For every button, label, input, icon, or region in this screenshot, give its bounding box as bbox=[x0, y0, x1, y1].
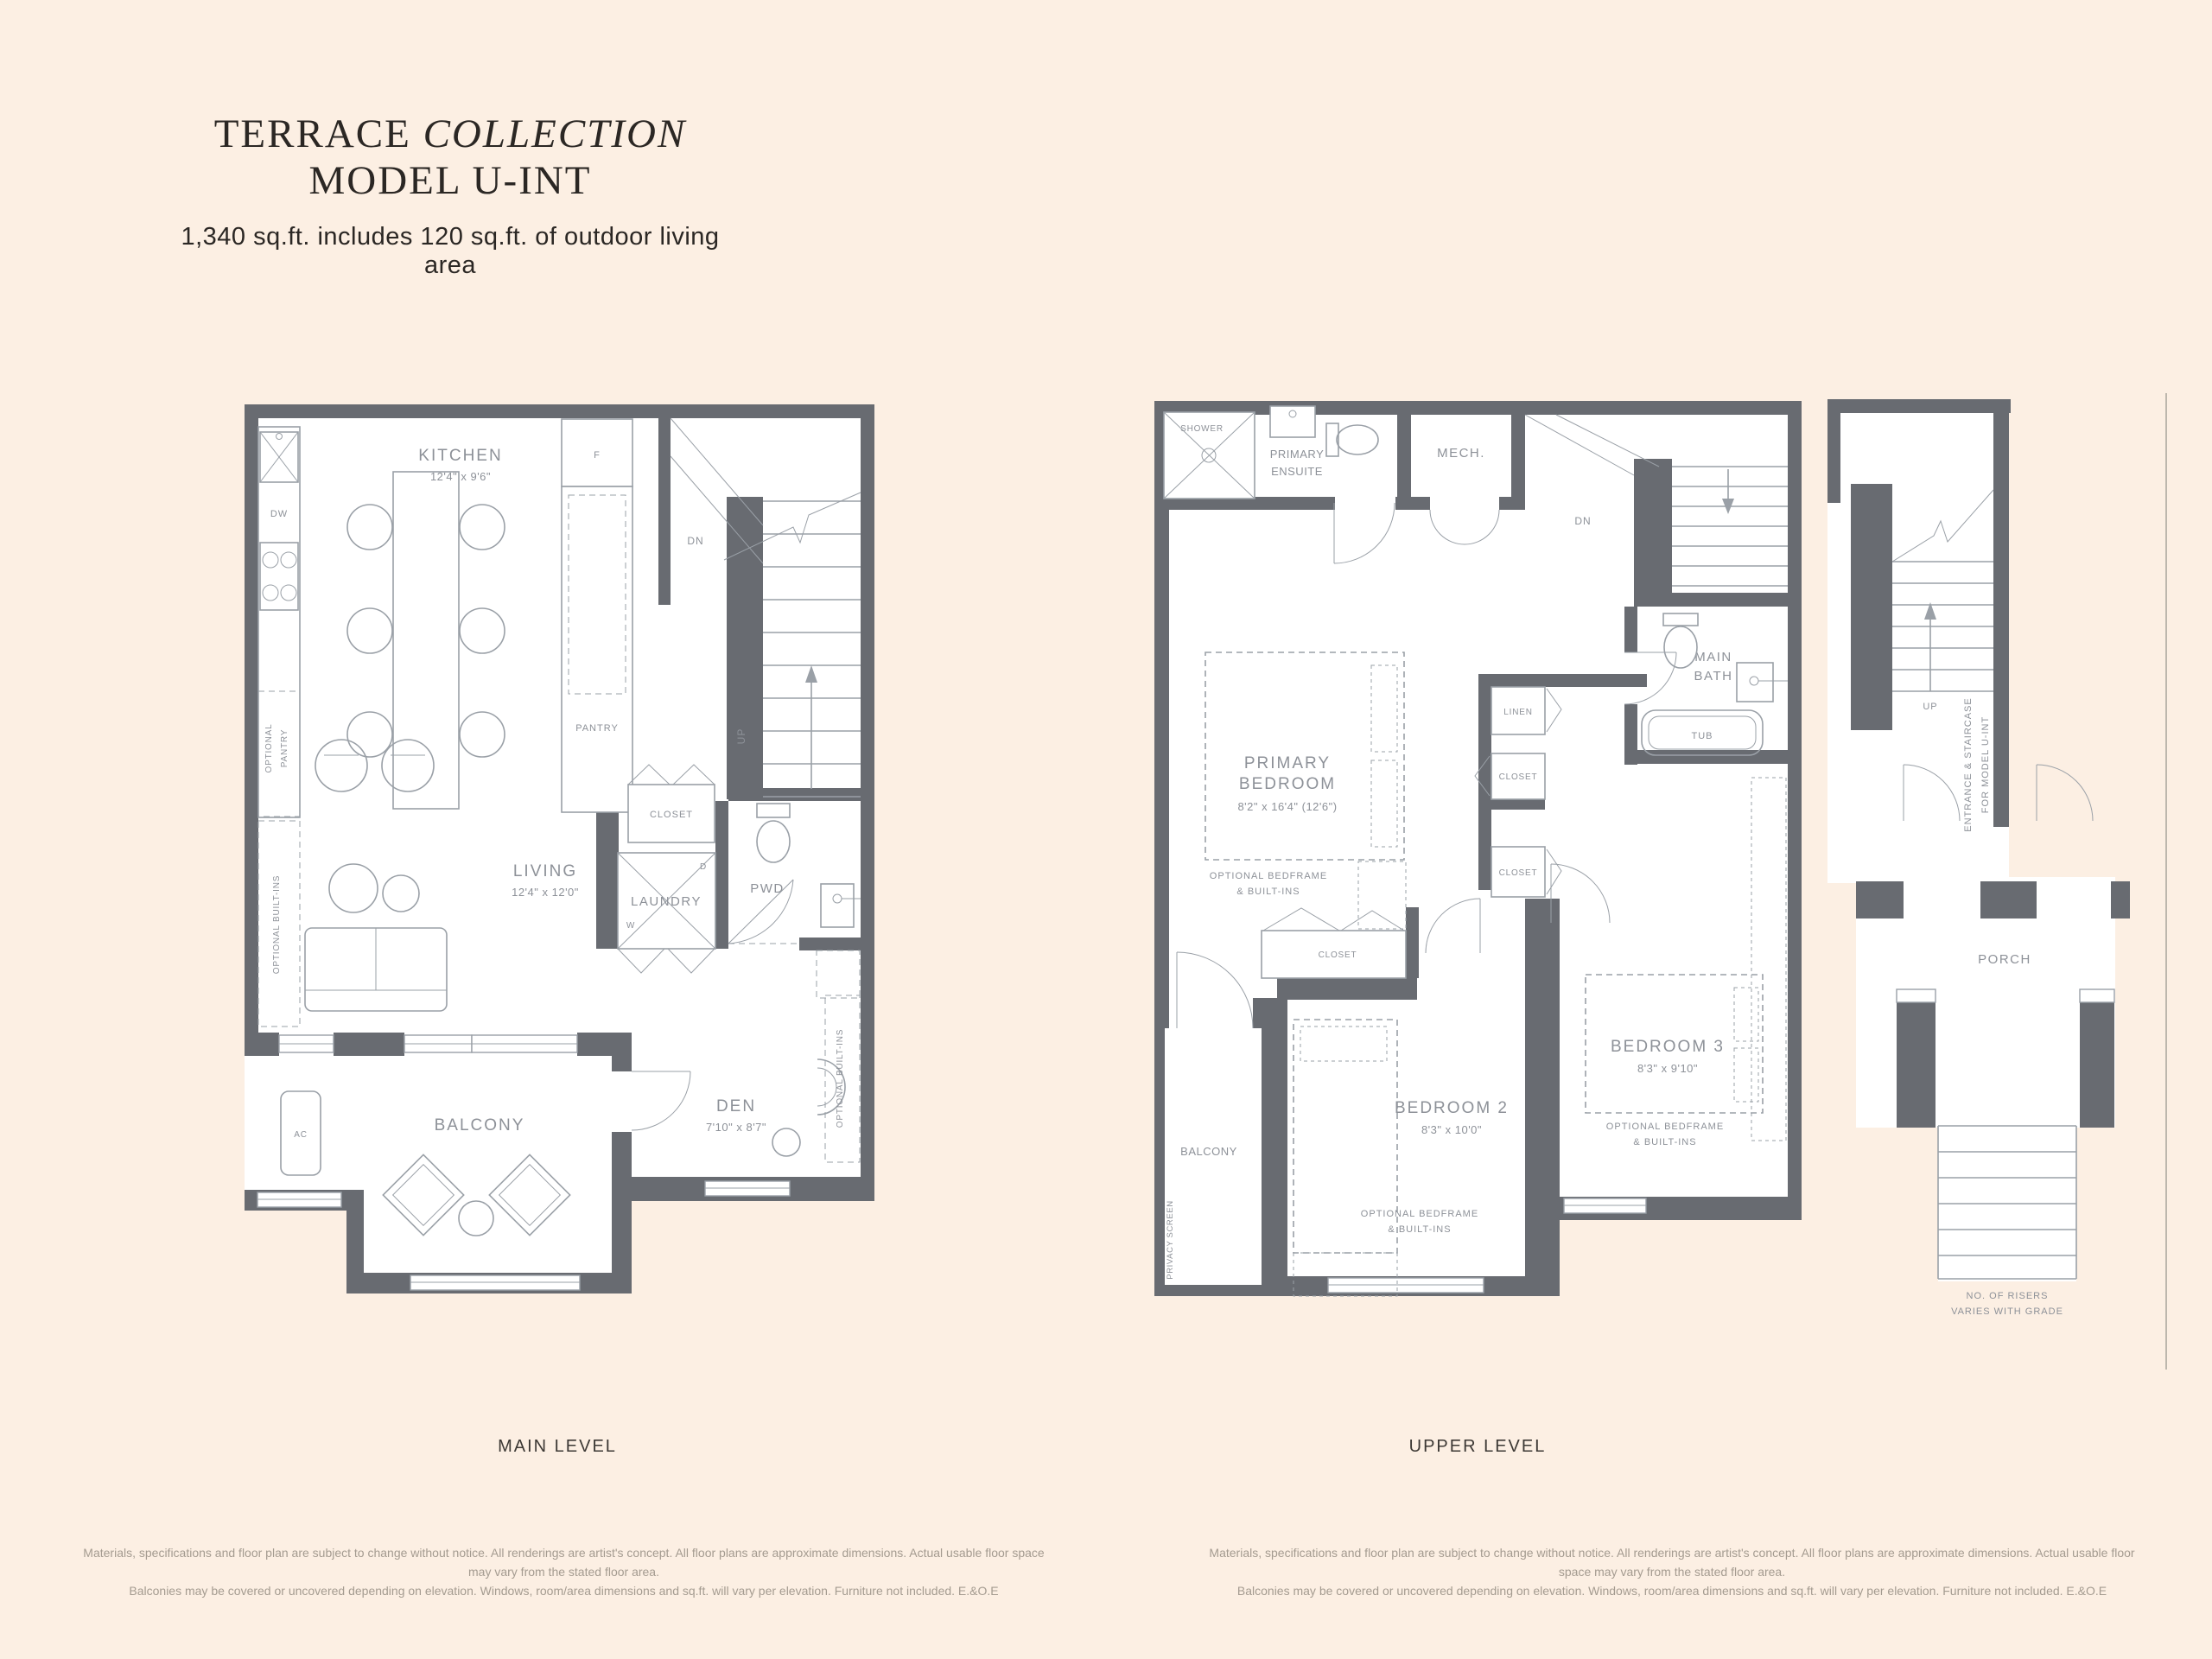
main-bath-label-2: BATH bbox=[1694, 669, 1733, 683]
main-bath-label-1: MAIN bbox=[1694, 650, 1732, 664]
fridge-label: F bbox=[594, 450, 601, 461]
pwd-toilet bbox=[757, 804, 790, 817]
optional-builtins-left-label: OPTIONAL BUILT-INS bbox=[272, 875, 282, 974]
risers-note-2: VARIES WITH GRADE bbox=[1951, 1306, 2063, 1317]
ensuite-label-1: PRIMARY bbox=[1270, 448, 1325, 461]
main-balcony-label: BALCONY bbox=[435, 1116, 525, 1135]
bedroom3-optional-bedframe-1: OPTIONAL BEDFRAME bbox=[1606, 1122, 1724, 1132]
page-title-line1: TERRACE COLLECTION bbox=[169, 111, 731, 157]
primary-closet-label: CLOSET bbox=[1319, 950, 1357, 960]
bedroom2-optional-bedframe-2: & BUILT-INS bbox=[1388, 1224, 1451, 1235]
kitchen-label: KITCHEN bbox=[418, 447, 502, 465]
privacy-screen-label: PRIVACY SCREEN bbox=[1166, 1200, 1175, 1279]
bedroom2-label: BEDROOM 2 bbox=[1395, 1099, 1509, 1117]
pantry-cabinet bbox=[562, 486, 632, 812]
page-subtitle: 1,340 sq.ft. includes 120 sq.ft. of outd… bbox=[169, 223, 731, 280]
entrance-up-label: UP bbox=[1923, 702, 1937, 712]
page-title-line2: MODEL U-INT bbox=[169, 157, 731, 204]
closet-1-label: CLOSET bbox=[1499, 772, 1538, 782]
upper-floor bbox=[1154, 401, 1802, 1296]
tub-label: TUB bbox=[1692, 731, 1713, 741]
bath-toilet bbox=[1663, 613, 1698, 626]
upper-level-caption: UPPER LEVEL bbox=[1365, 1437, 1590, 1457]
bedroom3-optional-bedframe-2: & BUILT-INS bbox=[1633, 1137, 1696, 1147]
upper-balcony-label: BALCONY bbox=[1180, 1145, 1237, 1158]
washer-label: W bbox=[626, 921, 635, 931]
disclaimer-right: Materials, specifications and floor plan… bbox=[1192, 1543, 2152, 1600]
closet-2-label: CLOSET bbox=[1499, 868, 1538, 878]
upper-dn-label: DN bbox=[1574, 515, 1591, 527]
main-closet-label: CLOSET bbox=[650, 810, 693, 820]
main-level-caption: MAIN LEVEL bbox=[445, 1437, 670, 1457]
laundry-label: LAUNDRY bbox=[631, 894, 702, 909]
linen-label: LINEN bbox=[1503, 708, 1532, 717]
living-label: LIVING bbox=[513, 862, 577, 880]
header: TERRACE COLLECTION MODEL U-INT 1,340 sq.… bbox=[169, 111, 731, 280]
pantry-label: PANTRY bbox=[575, 723, 619, 734]
bath-sink bbox=[1737, 663, 1773, 702]
dishwasher-label: DW bbox=[270, 509, 288, 519]
main-dn-label: DN bbox=[687, 535, 703, 547]
disclaimer-left: Materials, specifications and floor plan… bbox=[82, 1543, 1046, 1600]
disclaimer-left-line1: Materials, specifications and floor plan… bbox=[82, 1543, 1046, 1581]
dining-table bbox=[393, 472, 459, 809]
disclaimer-right-line1: Materials, specifications and floor plan… bbox=[1192, 1543, 2152, 1581]
primary-optional-bedframe-2: & BUILT-INS bbox=[1236, 887, 1300, 897]
pwd-sink bbox=[821, 884, 854, 927]
primary-bedroom-label-1: PRIMARY bbox=[1244, 754, 1331, 772]
den-label: DEN bbox=[716, 1097, 756, 1116]
optional-builtins-den-label: OPTIONAL BUILT-INS bbox=[836, 1029, 845, 1128]
floorplan-sheet: { "colors": { "background": "#fcefe3", "… bbox=[0, 0, 2212, 1659]
title-italic: COLLECTION bbox=[423, 111, 687, 156]
optional-pantry-label-1: OPTIONAL bbox=[264, 724, 274, 773]
mech-label: MECH. bbox=[1437, 446, 1485, 461]
disclaimer-left-line2: Balconies may be covered or uncovered de… bbox=[82, 1581, 1046, 1600]
disclaimer-right-line2: Balconies may be covered or uncovered de… bbox=[1192, 1581, 2152, 1600]
primary-bedroom-label-2: BEDROOM bbox=[1239, 775, 1336, 793]
bedroom3-dim: 8'3" x 9'10" bbox=[1637, 1062, 1698, 1075]
bedroom3-label: BEDROOM 3 bbox=[1611, 1038, 1725, 1056]
porch-label: PORCH bbox=[1978, 952, 2031, 967]
primary-optional-bedframe-1: OPTIONAL BEDFRAME bbox=[1210, 871, 1327, 881]
dryer-label: D bbox=[700, 862, 707, 872]
living-dim: 12'4" x 12'0" bbox=[512, 886, 579, 899]
entrance-stair-label-2: FOR MODEL U-INT bbox=[1980, 716, 1991, 813]
entrance-plan: UP ENTRANCE & STAIRCASE FOR MODEL U-INT … bbox=[1826, 393, 2171, 1378]
kitchen-dim: 12'4" x 9'6" bbox=[430, 470, 491, 483]
main-floor bbox=[245, 404, 874, 1294]
main-level-plan: DN UP DW KITCHEN 12'4" x 9'6" F PANTRY O… bbox=[240, 396, 880, 1313]
primary-bedroom-dim: 8'2" x 16'4" (12'6") bbox=[1237, 800, 1337, 813]
main-up-label: UP bbox=[735, 728, 747, 745]
bedroom2-optional-bedframe-1: OPTIONAL BEDFRAME bbox=[1361, 1209, 1478, 1219]
shower-label: SHOWER bbox=[1180, 424, 1224, 434]
title-regular: TERRACE bbox=[214, 111, 423, 156]
ac-label: AC bbox=[294, 1130, 308, 1140]
entrance-stair-label-1: ENTRANCE & STAIRCASE bbox=[1963, 697, 1974, 832]
risers-note-1: NO. OF RISERS bbox=[1967, 1291, 2049, 1301]
den-dim: 7'10" x 8'7" bbox=[706, 1121, 766, 1134]
optional-pantry-label-2: PANTRY bbox=[280, 729, 289, 767]
bedroom2-dim: 8'3" x 10'0" bbox=[1421, 1123, 1482, 1136]
ensuite-label-2: ENSUITE bbox=[1271, 465, 1323, 478]
upper-level-plan: SHOWER PRIMARY ENSUITE MECH. DN LINEN CL… bbox=[1154, 393, 1806, 1309]
